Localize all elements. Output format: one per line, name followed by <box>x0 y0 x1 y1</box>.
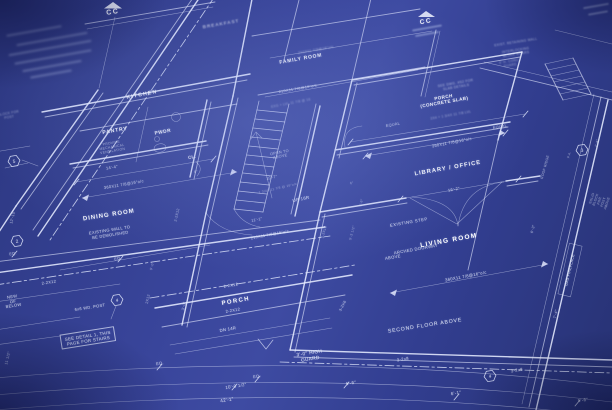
blurred-note-line <box>415 31 439 37</box>
blurred-note-line <box>583 3 609 9</box>
blueprint-photo: 52443 CCCCBREAKFAST210X11 7/8@16"o/cFAMI… <box>0 0 612 410</box>
blurred-note-line <box>30 69 72 78</box>
blurred-note-line <box>588 10 608 15</box>
defocused-notes <box>0 0 612 410</box>
blurred-note-line <box>8 40 91 57</box>
blurred-note-line <box>6 25 62 37</box>
